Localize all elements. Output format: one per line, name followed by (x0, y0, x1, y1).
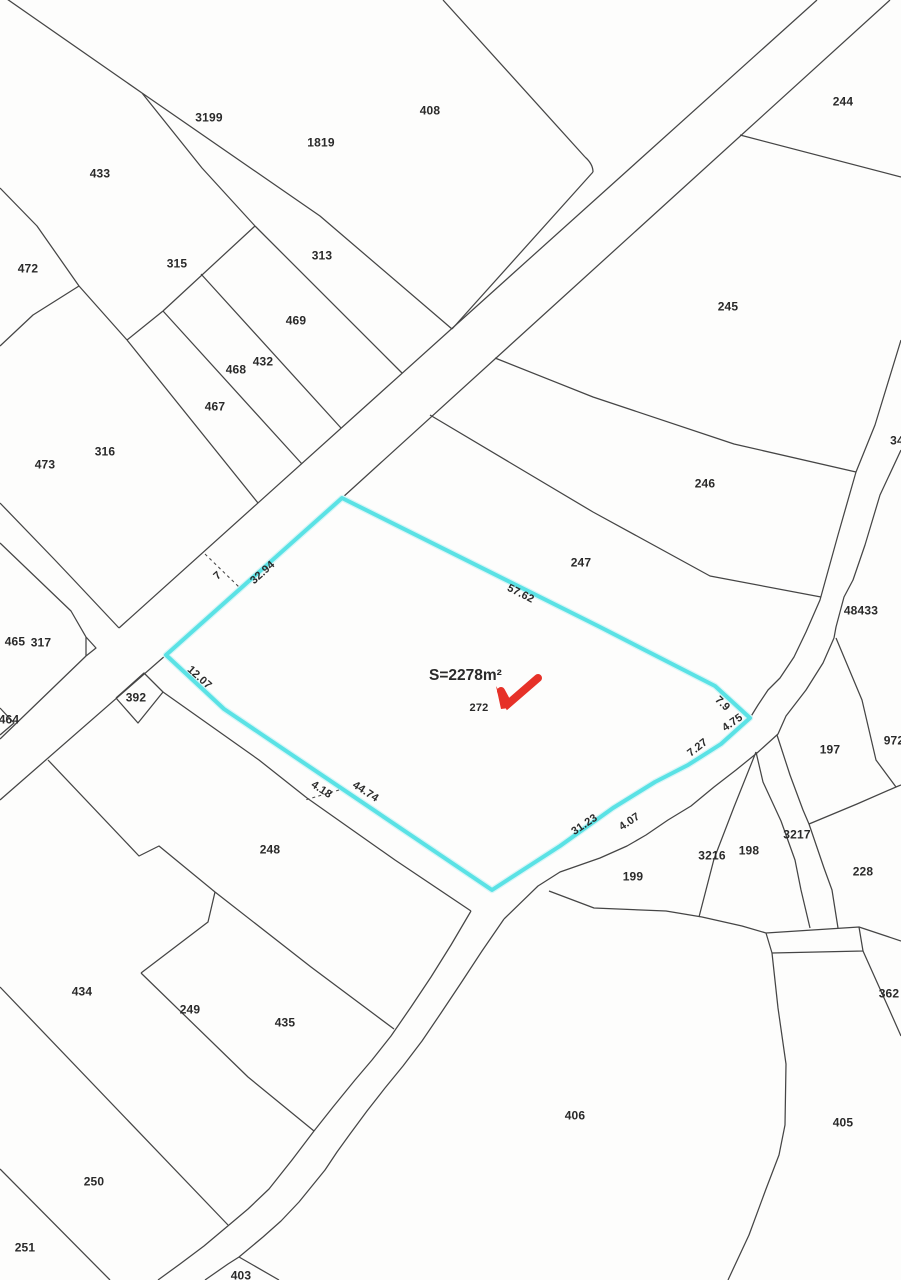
svg-text:1819: 1819 (307, 135, 335, 149)
svg-text:3216: 3216 (698, 848, 726, 862)
svg-text:251: 251 (15, 1240, 36, 1254)
svg-text:48433: 48433 (844, 603, 878, 617)
svg-text:316: 316 (95, 444, 116, 458)
svg-text:433: 433 (90, 166, 111, 180)
svg-text:34: 34 (890, 433, 901, 447)
svg-text:199: 199 (623, 869, 644, 883)
svg-text:S=2278m²: S=2278m² (429, 667, 502, 684)
svg-text:392: 392 (126, 690, 147, 704)
svg-text:313: 313 (312, 248, 333, 262)
svg-text:408: 408 (420, 103, 441, 117)
svg-text:250: 250 (84, 1174, 105, 1188)
svg-text:465: 465 (5, 634, 26, 648)
svg-text:362: 362 (879, 986, 900, 1000)
svg-text:248: 248 (260, 842, 281, 856)
svg-text:198: 198 (739, 843, 760, 857)
svg-text:317: 317 (31, 635, 52, 649)
svg-text:467: 467 (205, 399, 226, 413)
svg-text:244: 244 (833, 94, 854, 108)
svg-text:468: 468 (226, 362, 247, 376)
svg-text:3199: 3199 (195, 110, 223, 124)
svg-text:464: 464 (0, 712, 19, 726)
svg-text:972: 972 (884, 733, 901, 747)
svg-text:197: 197 (820, 742, 841, 756)
svg-text:406: 406 (565, 1108, 586, 1122)
svg-text:435: 435 (275, 1015, 296, 1029)
svg-text:403: 403 (231, 1268, 252, 1280)
svg-text:434: 434 (72, 984, 93, 998)
svg-text:247: 247 (571, 555, 592, 569)
svg-text:272: 272 (470, 702, 489, 714)
svg-text:246: 246 (695, 476, 716, 490)
svg-text:405: 405 (833, 1115, 854, 1129)
svg-text:432: 432 (253, 354, 274, 368)
svg-text:469: 469 (286, 313, 307, 327)
svg-text:472: 472 (18, 261, 39, 275)
svg-text:315: 315 (167, 256, 188, 270)
svg-text:245: 245 (718, 299, 739, 313)
svg-text:228: 228 (853, 864, 874, 878)
svg-text:3217: 3217 (783, 827, 811, 841)
svg-text:249: 249 (180, 1002, 201, 1016)
svg-text:473: 473 (35, 457, 56, 471)
